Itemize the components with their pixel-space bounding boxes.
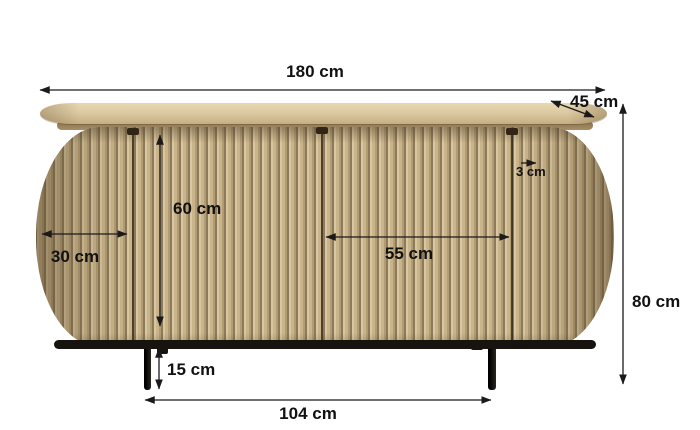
- dim-label-total-width: 180 cm: [255, 63, 375, 80]
- dim-label-total-height: 80 cm: [632, 293, 680, 310]
- dim-label-legs-outer-span: 104 cm: [258, 405, 358, 422]
- dim-label-door-height: 60 cm: [173, 200, 221, 217]
- dim-label-leg-height: 15 cm: [167, 361, 215, 378]
- dim-label-top-thickness: 3 cm: [516, 165, 546, 178]
- dim-label-depth: 45 cm: [570, 93, 618, 110]
- dim-label-side-door-width: 30 cm: [40, 248, 110, 265]
- product-dimension-diagram: 180 cm 45 cm 80 cm 60 cm 30 cm 55 cm 3 c…: [0, 0, 700, 430]
- dim-label-center-door-width: 55 cm: [359, 245, 459, 262]
